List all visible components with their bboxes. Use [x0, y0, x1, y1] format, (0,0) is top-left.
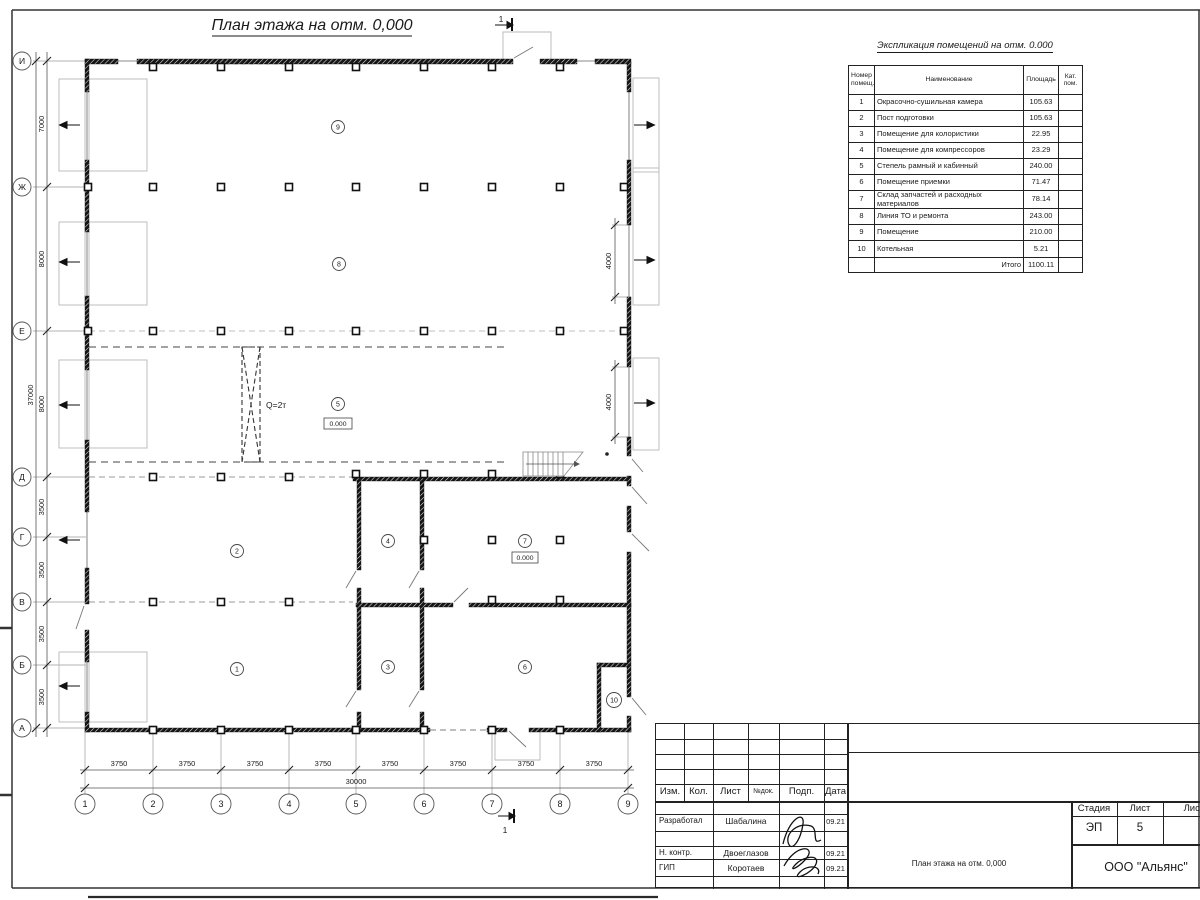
svg-text:3750: 3750: [382, 759, 399, 768]
svg-text:9: 9: [336, 125, 340, 132]
signature: [776, 836, 828, 896]
svg-text:Г: Г: [20, 532, 25, 542]
svg-text:4000: 4000: [604, 253, 613, 270]
tb-name: Шабалина: [713, 816, 779, 826]
room-schedule-table: Номерпомещ. Наименование Площадь Кат.пом…: [848, 65, 1083, 273]
table-row: 6Помещение приемки71.47: [849, 175, 1083, 191]
svg-text:0.000: 0.000: [516, 555, 533, 562]
tb-sheets-label: Листов: [1163, 803, 1200, 814]
tb-date: 09.21: [824, 817, 847, 826]
svg-text:2: 2: [235, 549, 239, 556]
walls: [85, 59, 631, 732]
tb-sheet-label: Лист: [1117, 803, 1163, 814]
tb-col-data: Дата: [824, 786, 847, 797]
tb-company: ООО "Альянс": [1071, 860, 1200, 874]
svg-text:9: 9: [625, 799, 630, 809]
table-row: 3Помещение для колористики22.95: [849, 127, 1083, 143]
schedule-total-row: Итого1100.11: [849, 258, 1083, 273]
tb-col-izm: Изм.: [656, 786, 684, 797]
svg-text:37000: 37000: [26, 385, 35, 406]
svg-text:30000: 30000: [346, 777, 367, 786]
svg-text:3: 3: [218, 799, 223, 809]
table-row: 10Котельная5.21: [849, 241, 1083, 258]
room-tags: 9 8 5 2 4 7 1 3 6 10: [231, 121, 622, 708]
svg-text:3750: 3750: [586, 759, 603, 768]
section-mark-bottom-label: 1: [503, 825, 508, 835]
svg-text:8: 8: [557, 799, 562, 809]
tb-name: Коротаев: [713, 863, 779, 873]
table-row: 7Склад запчастей и расходных материалов7…: [849, 191, 1083, 209]
svg-text:0.000: 0.000: [329, 421, 346, 428]
reference-dot: [605, 452, 609, 456]
tb-col-kol: Кол.: [684, 786, 713, 797]
title-block: Изм. Кол. Лист №док. Подп. Дата Разработ…: [655, 723, 1200, 888]
tb-role: Н. контр.: [659, 848, 713, 857]
crane-label: Q=2т: [266, 400, 286, 410]
table-row: 5Степель рамный и кабинный240.00: [849, 159, 1083, 175]
section-mark-bottom: [498, 809, 515, 823]
svg-text:А: А: [19, 723, 25, 733]
svg-text:3750: 3750: [315, 759, 332, 768]
svg-text:10: 10: [610, 698, 618, 705]
svg-text:1: 1: [82, 799, 87, 809]
structural-columns: [85, 64, 628, 734]
svg-text:В: В: [19, 597, 25, 607]
svg-text:2: 2: [150, 799, 155, 809]
svg-text:3500: 3500: [37, 689, 46, 706]
svg-text:7: 7: [523, 539, 527, 546]
stairs: [523, 452, 583, 476]
svg-text:3750: 3750: [247, 759, 264, 768]
svg-text:7: 7: [489, 799, 494, 809]
table-row: 1Окрасочно-сушильная камера105.63: [849, 95, 1083, 111]
schedule-header-row: Номерпомещ. Наименование Площадь Кат.пом…: [849, 66, 1083, 95]
tb-col-podp: Подп.: [779, 786, 824, 797]
elevation-marks: 0.000 0.000: [324, 418, 538, 563]
svg-text:3500: 3500: [37, 499, 46, 516]
header-room-area: Площадь: [1024, 66, 1059, 95]
svg-text:8000: 8000: [37, 251, 46, 268]
svg-text:3750: 3750: [179, 759, 196, 768]
svg-text:6: 6: [421, 799, 426, 809]
col-axis-bubbles: 1 2 3 4 5 6 7 8 9: [75, 794, 638, 814]
total-label: Итого: [875, 258, 1024, 273]
svg-text:Е: Е: [19, 326, 25, 336]
table-row: 2Пост подготовки105.63: [849, 111, 1083, 127]
svg-text:4: 4: [386, 539, 390, 546]
svg-text:4: 4: [286, 799, 291, 809]
svg-text:Д: Д: [19, 472, 25, 482]
svg-text:И: И: [19, 56, 25, 66]
section-mark-top-label: 1: [499, 14, 504, 24]
table-row: 8Линия ТО и ремонта243.00: [849, 209, 1083, 225]
svg-text:6: 6: [523, 665, 527, 672]
header-room-number: Номерпомещ.: [849, 66, 875, 95]
page-title: План этажа на отм. 0,000: [211, 17, 412, 34]
tb-stage-value: ЭП: [1071, 822, 1117, 834]
dashed-lines: [89, 64, 624, 730]
svg-text:3: 3: [386, 665, 390, 672]
svg-text:5: 5: [353, 799, 358, 809]
svg-text:4000: 4000: [604, 394, 613, 411]
table-row: 4Помещение для компрессоров23.29: [849, 143, 1083, 159]
svg-text:3500: 3500: [37, 626, 46, 643]
svg-text:5: 5: [336, 402, 340, 409]
header-room-cat: Кат.пом.: [1059, 66, 1083, 95]
tb-role: ГИП: [659, 863, 713, 872]
svg-text:3500: 3500: [37, 562, 46, 579]
tb-name: Двоеглазов: [713, 848, 779, 858]
svg-text:Б: Б: [19, 660, 25, 670]
svg-text:1: 1: [235, 667, 239, 674]
header-room-name: Наименование: [875, 66, 1024, 95]
table-row: 9Помещение210.00: [849, 225, 1083, 241]
tb-doc-title: План этажа на отм. 0,000: [847, 859, 1071, 868]
drawing-sheet: { "sheet": { "title": "План этажа на отм…: [0, 0, 1200, 900]
tb-stage-label: Стадия: [1071, 803, 1117, 814]
tb-sheet-value: 5: [1117, 822, 1163, 834]
tb-role: Разработал: [659, 816, 713, 825]
dimension-texts: 7000 8000 8000 3500 3500 3500 3500 37000…: [26, 116, 613, 786]
tb-col-list: Лист: [713, 786, 748, 797]
svg-text:3750: 3750: [450, 759, 467, 768]
svg-text:8: 8: [337, 262, 341, 269]
tb-col-ndok: №док.: [748, 788, 779, 795]
door-leaves: [76, 47, 649, 747]
svg-text:Ж: Ж: [18, 182, 26, 192]
svg-text:7000: 7000: [37, 116, 46, 133]
total-value: 1100.11: [1024, 258, 1059, 273]
svg-text:3750: 3750: [111, 759, 128, 768]
schedule-title: Экспликация помещений на отм. 0.000: [840, 40, 1090, 51]
svg-text:8000: 8000: [37, 396, 46, 413]
crane-symbol: [242, 347, 260, 462]
